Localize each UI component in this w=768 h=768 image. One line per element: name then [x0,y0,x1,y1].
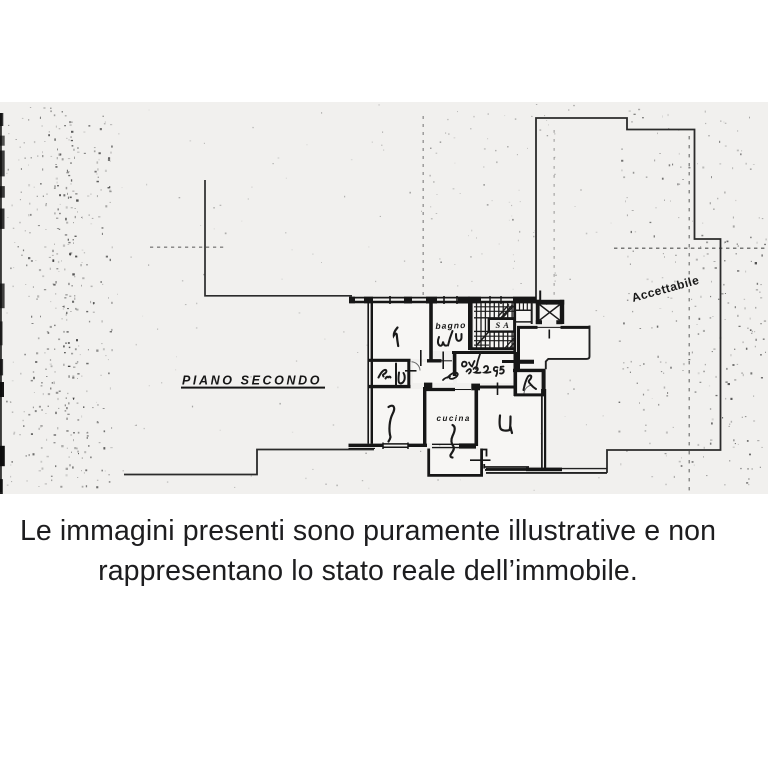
svg-text:SA: SA [496,320,512,330]
svg-text:Accettabile: Accettabile [630,273,701,305]
svg-text:PIANO SECONDO: PIANO SECONDO [182,374,322,388]
svg-text:cucina: cucina [437,414,471,423]
svg-text:bagno: bagno [435,320,466,331]
